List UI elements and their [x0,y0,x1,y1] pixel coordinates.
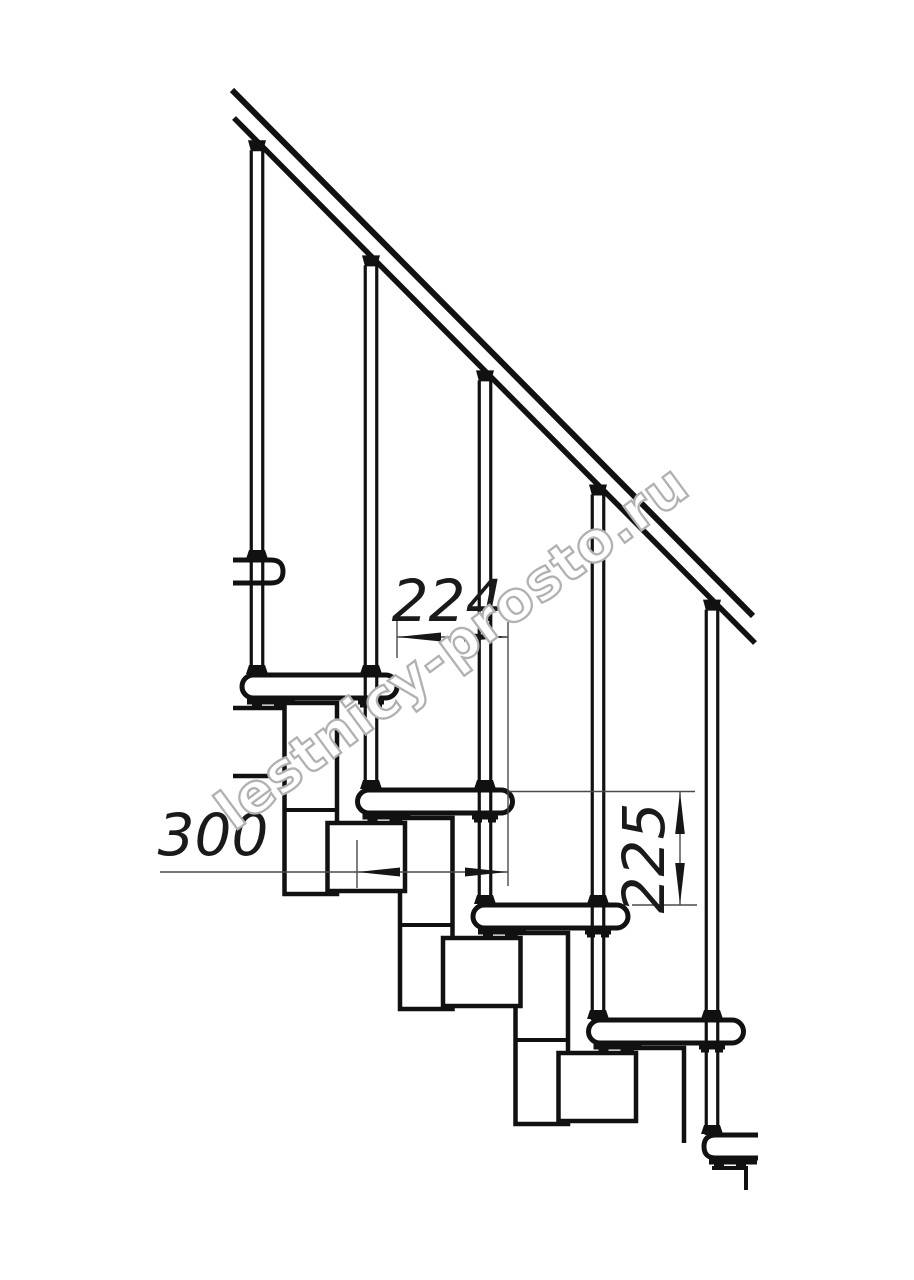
support-clamp [443,938,521,1006]
mount-foot [274,704,284,709]
step-tread [589,1020,744,1043]
support-tube [632,1048,685,1143]
support-clamp [233,708,289,776]
mount-strip [709,1157,757,1165]
dimension-arrow [465,868,508,877]
baluster-collar [587,1010,609,1019]
mount-foot [599,1049,609,1054]
step-tread [704,1135,758,1158]
mount-strip [247,697,295,705]
baluster-collar [587,895,609,904]
staircase-technical-drawing: 224 300 225 lestnicy-prosto.ru [0,0,914,1280]
dimension-rise-label: 225 [610,803,678,914]
top-landing-step-end [233,560,283,583]
baluster-collar [360,780,382,789]
step-tread [242,675,397,698]
dimension-step-length-label: 300 [158,801,269,869]
mount-foot [714,1164,724,1169]
baluster-collar [474,895,496,904]
handrail-line [234,118,755,643]
baluster-collar [701,1010,723,1019]
mount-strip [594,1042,642,1050]
handrail-line [232,90,753,616]
support-clamp [328,823,406,891]
support-clamp [559,1053,637,1121]
mount-foot [368,819,378,824]
staircase-drawing-svg: 224 300 225 [0,0,914,1280]
baluster-collar [701,1125,723,1134]
mount-foot [736,1164,746,1169]
mount-foot [390,819,400,824]
mount-foot [505,934,515,939]
mount-foot [252,704,262,709]
mount-foot [483,934,493,939]
mount-foot [621,1049,631,1054]
mount-strip [478,927,526,935]
support-clamp [712,1168,746,1190]
dimension-going-label: 224 [392,567,503,635]
baluster-collar [360,665,382,674]
baluster-collar [246,665,268,674]
baluster-collar [474,780,496,789]
baluster-collar [246,550,268,559]
mount-strip [363,812,411,820]
